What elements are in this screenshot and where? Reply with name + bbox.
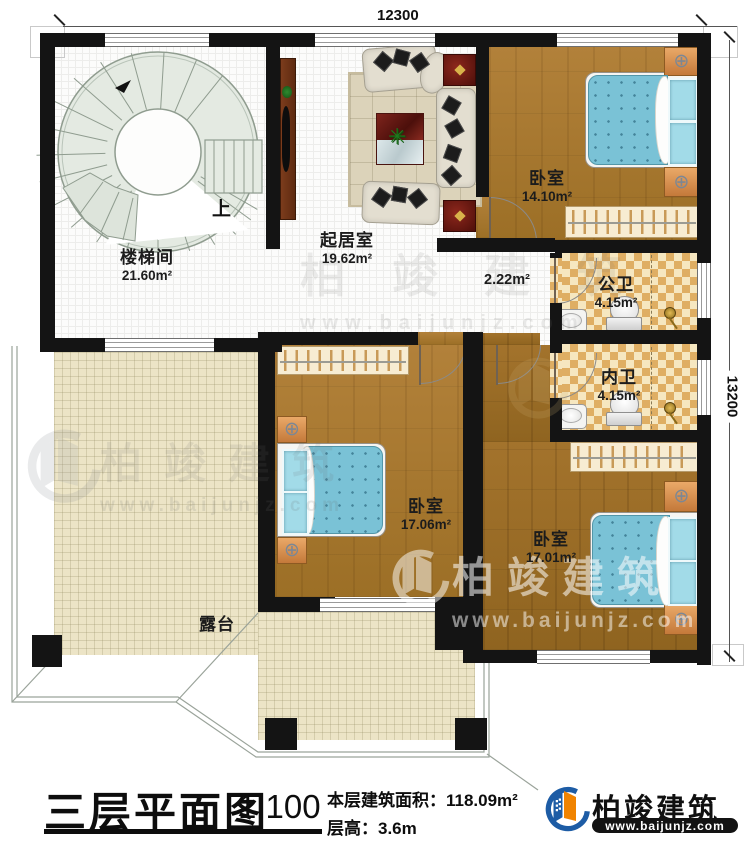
- terrace-column: [455, 718, 487, 750]
- corner-mat: [443, 200, 476, 232]
- spiral-staircase: [45, 40, 275, 255]
- wall: [435, 597, 463, 650]
- wall: [40, 33, 55, 352]
- window: [537, 650, 650, 664]
- sofa-pillow: [391, 186, 408, 203]
- nightstand: ⊕: [277, 537, 307, 564]
- room-label-bedroom2: 卧室 17.06m²: [401, 492, 451, 532]
- bed-mattress: [306, 446, 383, 534]
- wall: [550, 253, 562, 258]
- floor-height-text: 层高：3.6m: [327, 814, 417, 839]
- drawing-scale: 1:100: [238, 788, 321, 826]
- floor-plan-canvas: ✳ ⊕ ⊕ ⊕ ⊕ ⊕ ⊕: [0, 0, 750, 851]
- shower-divider: [651, 347, 652, 429]
- small-area-label: 2.22m²: [484, 272, 530, 288]
- wall: [258, 332, 275, 612]
- brand-url: www.baijunjz.com: [592, 818, 738, 833]
- room-label-living: 起居室 19.62m²: [320, 226, 374, 266]
- room-label-public-bath: 公卫 4.15m²: [595, 270, 638, 310]
- nightstand: ⊕: [664, 47, 699, 76]
- nightstand: ⊕: [277, 416, 307, 443]
- door-leaf: [554, 353, 556, 398]
- nightstand: ⊕: [664, 481, 699, 512]
- terrace-column: [265, 718, 297, 750]
- wall: [437, 238, 555, 252]
- wardrobe: [565, 206, 699, 238]
- brand-logo-icon: [540, 784, 588, 834]
- plant: [282, 86, 292, 98]
- floor-area-text: 本层建筑面积：118.09m²: [327, 786, 518, 811]
- shower-head: [664, 307, 676, 319]
- wall: [550, 430, 702, 442]
- dimension-top: 12300: [372, 7, 424, 24]
- toilet-tank: [606, 317, 642, 331]
- door-leaf: [419, 345, 421, 385]
- bed-pillow: [282, 449, 309, 493]
- wall: [550, 330, 702, 344]
- corner-mat: [443, 54, 476, 86]
- terrace-column: [32, 635, 62, 667]
- stair-up-label: 上: [212, 194, 231, 221]
- room-label-stairs: 楼梯间 21.60m²: [120, 243, 174, 283]
- window: [105, 33, 209, 47]
- wall: [555, 240, 702, 253]
- window: [315, 33, 435, 47]
- window: [697, 360, 711, 415]
- wall: [697, 33, 711, 665]
- door-leaf: [496, 345, 498, 385]
- tv: [282, 106, 290, 172]
- bed-pillow: [668, 78, 698, 122]
- wall: [258, 332, 418, 345]
- bed-pillow: [668, 517, 698, 562]
- bed-pillow: [668, 560, 698, 606]
- wall: [476, 46, 489, 197]
- wardrobe: [277, 346, 409, 375]
- bed-pillow: [668, 121, 698, 166]
- dimension-line-right: [729, 40, 730, 662]
- shower-divider: [651, 255, 652, 329]
- wall: [463, 332, 483, 663]
- wall: [266, 46, 280, 249]
- window: [105, 338, 214, 352]
- room-label-bedroom3: 卧室 17.01m²: [526, 525, 576, 565]
- dimension-line-top: [63, 26, 737, 27]
- door-leaf: [554, 258, 556, 303]
- title-underline: [44, 829, 322, 834]
- room-label-private-bath: 内卫 4.15m²: [598, 363, 641, 403]
- window: [320, 598, 435, 612]
- shower-head: [664, 402, 676, 414]
- table-plant: ✳: [388, 124, 406, 150]
- bed-pillow: [282, 491, 309, 535]
- toilet-tank: [606, 412, 642, 426]
- wall: [550, 303, 562, 353]
- room-label-terrace: 露台: [199, 610, 235, 635]
- nightstand: ⊕: [664, 167, 699, 197]
- dimension-right: 13200: [723, 371, 740, 423]
- nightstand: ⊕: [664, 604, 699, 635]
- wardrobe: [570, 442, 699, 472]
- door-leaf: [489, 197, 491, 241]
- room-label-bedroom1: 卧室 14.10m²: [522, 164, 572, 204]
- window: [557, 33, 678, 47]
- window: [697, 263, 711, 318]
